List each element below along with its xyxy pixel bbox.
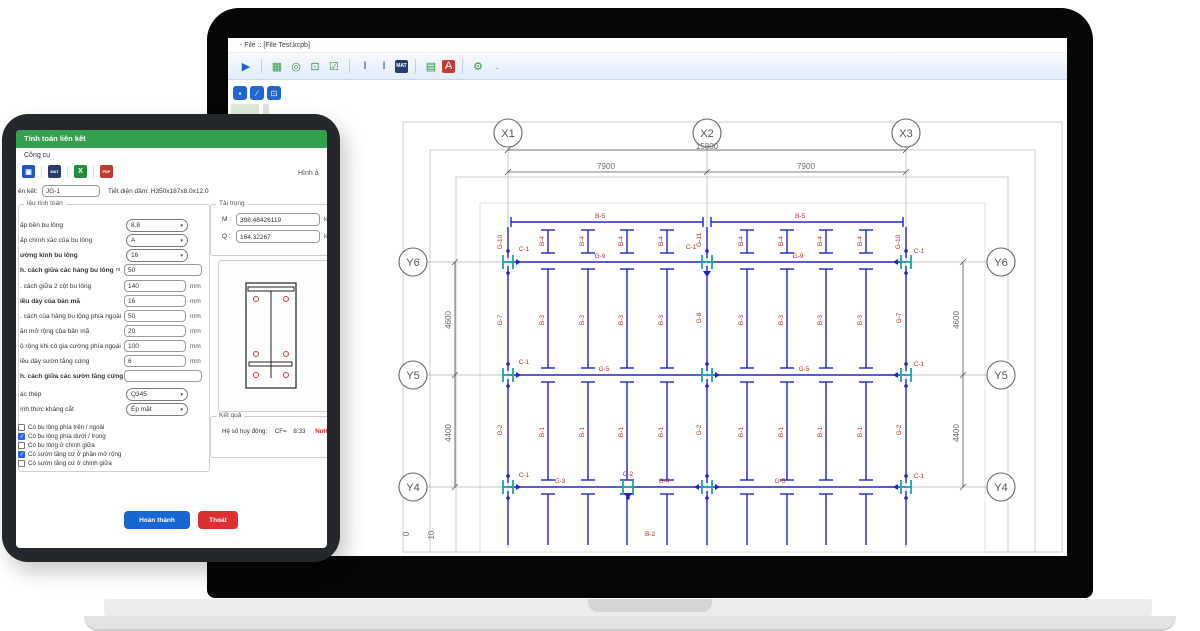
toolbar-separator — [93, 166, 94, 178]
plan-label: G-5 — [599, 366, 610, 373]
chevron-down-icon: ▾ — [180, 223, 183, 229]
plan-label: B-3 — [857, 315, 864, 326]
field-select[interactable]: Q345▾ — [126, 388, 188, 401]
column-section-icon[interactable]: I — [357, 58, 373, 74]
plan-label: B-4 — [857, 236, 864, 247]
checkbox-label: Có bu lông phía trên / ngoài — [28, 424, 104, 431]
capture-icon[interactable]: ◎ — [288, 58, 304, 74]
plan-label: X2 — [700, 128, 713, 140]
select-value: Ép mặt — [131, 406, 152, 413]
plan-label: Y6 — [406, 257, 419, 269]
plan-label: C-1 — [519, 472, 530, 479]
plan-label: 7900 — [797, 162, 815, 171]
shear-input[interactable]: 164.32267 — [236, 230, 320, 243]
window-title: - File :: [File Test.kcpb] — [240, 42, 310, 49]
plan-label: 7900 — [597, 162, 615, 171]
plan-label: G-2 — [896, 424, 903, 435]
moment-label: M : — [222, 216, 231, 223]
run-icon[interactable]: ▶ — [238, 58, 254, 74]
section-preview-box — [218, 260, 327, 412]
toolbar-separator — [67, 166, 68, 178]
scan-icon[interactable]: ⊡ — [307, 58, 323, 74]
section-preview-drawing — [219, 261, 327, 411]
dialog-title: Tính toán liên kết — [24, 134, 86, 143]
plan-label: B-5 — [795, 213, 806, 220]
field-label: ấp chính xác của bu lông — [20, 237, 92, 244]
chevron-down-icon: ▾ — [180, 407, 183, 413]
field-label: . cách của hàng bu lông phía ngoài — [20, 313, 121, 320]
plan-label: C-1 — [914, 361, 925, 368]
checkbox-label: Có bu lông ở chính giữa — [28, 442, 95, 449]
plan-label: C-1 — [914, 248, 925, 255]
checklist-icon[interactable]: ☑ — [326, 58, 342, 74]
plan-label: B-4 — [658, 236, 665, 247]
shear-unit: kN — [324, 233, 327, 240]
result-row: Hệ số huy động: CF= 8.33 NotOK — [222, 428, 327, 435]
plan-label: 4400 — [444, 424, 453, 442]
plan-label: G-2 — [497, 424, 504, 435]
field-select[interactable]: Ép mặt▾ — [126, 403, 188, 416]
checkbox[interactable] — [18, 433, 25, 440]
result-groupbox — [210, 416, 327, 458]
plan-label: C-1 — [519, 359, 530, 366]
field-label: ác thép — [20, 391, 41, 398]
field-unit: mm — [190, 343, 201, 350]
plan-label: B-3 — [738, 315, 745, 326]
plan-label: G-10 — [497, 234, 504, 249]
plan-label: 0 — [402, 531, 411, 536]
plan-label: B-1 — [658, 427, 665, 438]
field-unit: mm — [190, 313, 201, 320]
pdf-export-icon[interactable]: PDF — [100, 165, 113, 178]
connection-dialog: Tính toán liên kết Công cụ ▣MATXPDF Hình… — [16, 130, 327, 548]
plan-label: B-1 — [579, 427, 586, 438]
field-input[interactable]: 16 — [124, 295, 186, 307]
field-label: iều dày sườn tăng cứng — [20, 358, 89, 365]
plan-label: B-1 — [539, 427, 546, 438]
plan-label: B-5 — [595, 213, 606, 220]
field-label: h. cách giữa các hàng bu lông — [20, 267, 114, 274]
framing-plan-drawing: X1X2X3Y6Y5Y4Y6Y5Y41580079007900460044004… — [228, 80, 1067, 556]
main-toolbar: ▶▦◎⊡☑IIMAT▤A⚙. — [228, 53, 1067, 80]
plan-label: G-9 — [595, 253, 606, 260]
checkbox[interactable] — [18, 451, 25, 458]
toolbar-separator — [349, 59, 350, 73]
image-section-label: Hình ả — [298, 170, 319, 177]
plan-label: B-1 — [738, 427, 745, 438]
beam-section-icon[interactable]: I — [376, 58, 392, 74]
plan-label: G-7 — [896, 312, 903, 323]
connection-label: ên kết: — [18, 188, 38, 195]
titlebar: - File :: [File Test.kcpb] — [228, 38, 1067, 53]
mat-export-icon[interactable]: MAT — [395, 60, 408, 73]
plan-label: B-3 — [817, 315, 824, 326]
field-label: iều dày của bản mã — [20, 298, 80, 305]
plan-label: X1 — [501, 128, 514, 140]
field-prefix: ni — [116, 267, 120, 273]
plan-label: C-1 — [686, 244, 697, 251]
field-input[interactable]: 50 — [124, 264, 202, 276]
excel-icon[interactable]: ▤ — [423, 58, 439, 74]
plan-label: G-4 — [659, 478, 670, 485]
plan-label: C-2 — [623, 471, 634, 478]
plan-label: B-3 — [658, 315, 665, 326]
exit-button[interactable]: Thoát — [198, 511, 238, 529]
plan-label: C-1 — [914, 473, 925, 480]
plan-label: Y4 — [994, 482, 1007, 494]
plan-label: G-5 — [799, 366, 810, 373]
field-select[interactable]: 16▾ — [126, 249, 188, 262]
plan-label: B-1 — [857, 427, 864, 438]
shear-label: Q : — [222, 233, 231, 240]
beam-section-text: Tiết diện dầm: H350x187x8.0x12.0 — [108, 188, 209, 195]
pdf-icon[interactable]: A — [442, 60, 455, 73]
moment-input[interactable]: 398.48426119 — [236, 213, 320, 226]
tablet-frame: Tính toán liên kết Công cụ ▣MATXPDF Hình… — [2, 114, 340, 562]
plan-label: X3 — [899, 128, 912, 140]
checkbox[interactable] — [18, 442, 25, 449]
more-dot[interactable]: . — [489, 58, 505, 74]
dialog-titlebar: Tính toán liên kết — [16, 130, 327, 148]
finish-button[interactable]: Hoàn thành — [124, 511, 190, 529]
select-value: 16 — [131, 252, 138, 259]
plan-label: B-4 — [579, 236, 586, 247]
result-groupbox-legend: Kết quả — [216, 412, 244, 419]
plan-label: B-3 — [539, 315, 546, 326]
toolbar-separator — [261, 59, 262, 73]
result-cf-value: 8.33 — [293, 428, 305, 435]
toolbar-separator — [462, 59, 463, 73]
plan-label: Y4 — [406, 482, 419, 494]
field-unit: mm — [190, 283, 201, 290]
field-label: ần mở rộng của bản mã — [20, 328, 89, 335]
plan-label: 10 — [427, 530, 436, 539]
chevron-down-icon: ▾ — [180, 238, 183, 244]
plan-label: C-1 — [519, 246, 530, 253]
grid-icon[interactable]: ▦ — [269, 58, 285, 74]
field-unit: mm — [190, 328, 201, 335]
plan-label: B-4 — [778, 236, 785, 247]
result-text: Hệ số huy động: — [222, 428, 267, 435]
plan-label: B-3 — [618, 315, 625, 326]
field-input[interactable]: 6 — [124, 355, 186, 367]
plan-label: G-10 — [895, 234, 902, 249]
checkbox-label: Có sườn tăng cứ ở chính giữa — [28, 460, 112, 467]
plan-label: B-2 — [645, 531, 656, 538]
field-label: ộ rộng khi có gia cường phía ngoài — [20, 343, 121, 350]
loads-groupbox-legend: Tải trọng — [216, 200, 248, 207]
laptop-base-notch — [588, 599, 712, 612]
field-input[interactable]: 50 — [124, 310, 186, 322]
field-label: h. cách giữa các sườn tăng cứng — [20, 373, 123, 380]
chevron-down-icon: ▾ — [180, 253, 183, 259]
input-groupbox-legend: iệu tính toán — [24, 200, 66, 207]
checkbox[interactable] — [18, 460, 25, 467]
field-label: ường kính bu lông — [20, 252, 78, 259]
plan-label: B-1 — [618, 427, 625, 438]
plan-label: G-3 — [555, 478, 566, 485]
field-input[interactable]: 100 — [124, 340, 186, 352]
plan-label: G-11 — [696, 233, 703, 247]
settings-icon[interactable]: ⚙ — [470, 58, 486, 74]
plan-label: B-4 — [738, 236, 745, 247]
plan-label: B-3 — [778, 315, 785, 326]
chevron-down-icon: ▾ — [180, 392, 183, 398]
plan-label: B-3 — [579, 315, 586, 326]
field-label: . cách giữa 2 cột bu lông — [20, 283, 91, 290]
checkbox-label: Có sườn tăng cứ ở phần mở rộng — [28, 451, 121, 458]
plan-label: Y5 — [406, 370, 419, 382]
plan-label: G-8 — [696, 312, 703, 323]
plan-label: G-2 — [696, 424, 703, 435]
select-value: A — [131, 237, 135, 244]
plan-label: Y6 — [994, 257, 1007, 269]
connection-input[interactable]: JG-1 — [42, 185, 100, 197]
menu-tools[interactable]: Công cụ — [24, 152, 50, 159]
steel-members — [508, 217, 906, 545]
plan-label: B-1 — [817, 427, 824, 438]
field-input[interactable]: 20 — [124, 325, 186, 337]
laptop-base-lip — [84, 616, 1176, 631]
field-unit: mm — [190, 298, 201, 305]
plan-label: B-4 — [817, 236, 824, 247]
checkbox[interactable] — [18, 424, 25, 431]
plan-label: 4600 — [952, 311, 961, 329]
plan-label: B-4 — [618, 236, 625, 247]
plan-label: G-5 — [775, 478, 786, 485]
plan-label: 4400 — [952, 424, 961, 442]
member-labels: X1X2X3Y6Y5Y4Y6Y5Y41580079007900460044004… — [402, 128, 1008, 539]
field-select[interactable]: A▾ — [126, 234, 188, 247]
plan-label: 4600 — [444, 311, 453, 329]
save-icon[interactable]: ▣ — [22, 165, 35, 178]
result-status-badge: NotOK — [315, 428, 327, 435]
mat-export-icon[interactable]: MAT — [48, 165, 61, 178]
select-value: Q345 — [131, 391, 147, 398]
dialog-toolbar: ▣MATXPDF — [22, 165, 113, 178]
field-input[interactable]: 140 — [124, 280, 186, 292]
field-unit: mm — [190, 358, 201, 365]
toolbar-separator — [41, 166, 42, 178]
plan-label: G-9 — [793, 253, 804, 260]
plan-label: B-1 — [778, 427, 785, 438]
moment-unit: kN — [324, 216, 327, 223]
plan-label: G-7 — [497, 314, 504, 325]
result-cf-label: CF= — [275, 428, 287, 435]
dimension-lines — [452, 147, 966, 490]
toolbar-separator — [415, 59, 416, 73]
checkbox-label: Có bu lông phía dưới / trong — [28, 433, 106, 440]
excel-export-icon[interactable]: X — [74, 165, 87, 178]
select-value: 8.8 — [131, 222, 140, 229]
field-select[interactable]: 8.8▾ — [126, 219, 188, 232]
plan-label: Y5 — [994, 370, 1007, 382]
plan-label: B-4 — [539, 236, 546, 247]
field-label: ình thức kháng cắt — [20, 406, 74, 413]
plan-label: 15800 — [696, 142, 719, 151]
field-label: ấp bền bu lông — [20, 222, 63, 229]
field-input[interactable] — [124, 370, 202, 382]
